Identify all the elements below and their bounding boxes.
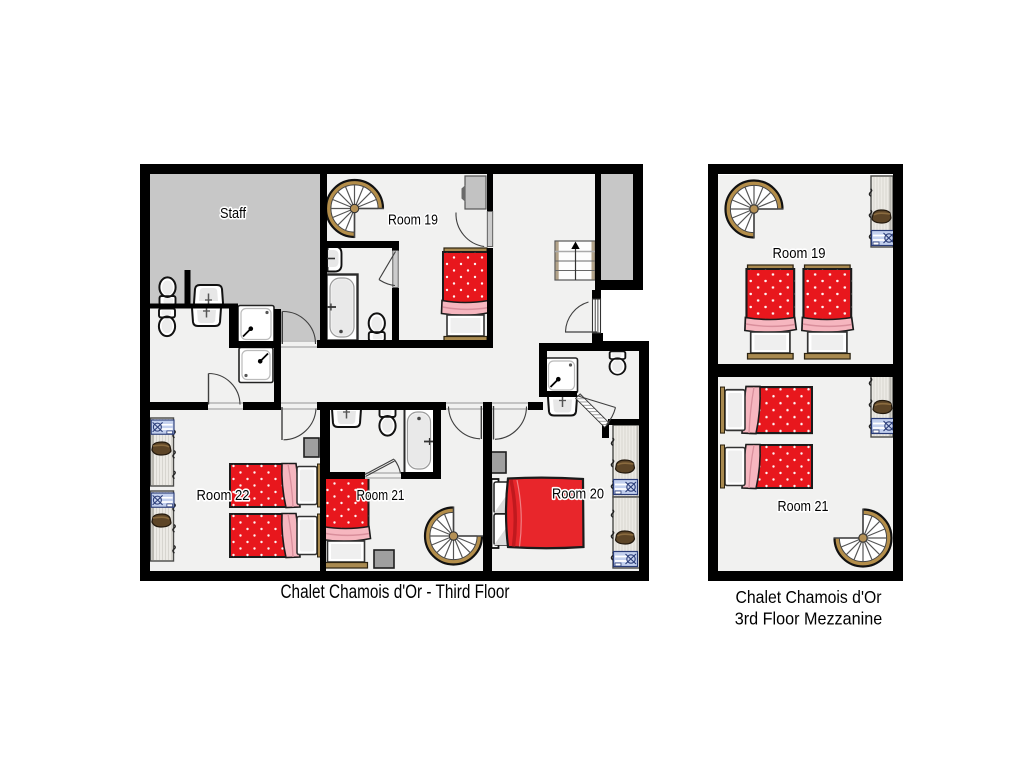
- svg-text:Room 21: Room 21: [357, 487, 405, 504]
- svg-text:Room 21: Room 21: [778, 498, 829, 515]
- svg-text:Chalet Chamois d'Or - Third Fl: Chalet Chamois d'Or - Third Floor: [281, 582, 511, 603]
- svg-text:3rd Floor Mezzanine: 3rd Floor Mezzanine: [735, 609, 883, 629]
- svg-text:Room 20: Room 20: [552, 486, 604, 503]
- svg-text:Room 22: Room 22: [197, 487, 250, 504]
- svg-text:Chalet Chamois d'Or: Chalet Chamois d'Or: [736, 587, 882, 607]
- svg-text:Staff: Staff: [220, 205, 247, 222]
- svg-text:Room 19: Room 19: [388, 212, 438, 229]
- svg-text:Room 19: Room 19: [773, 245, 826, 262]
